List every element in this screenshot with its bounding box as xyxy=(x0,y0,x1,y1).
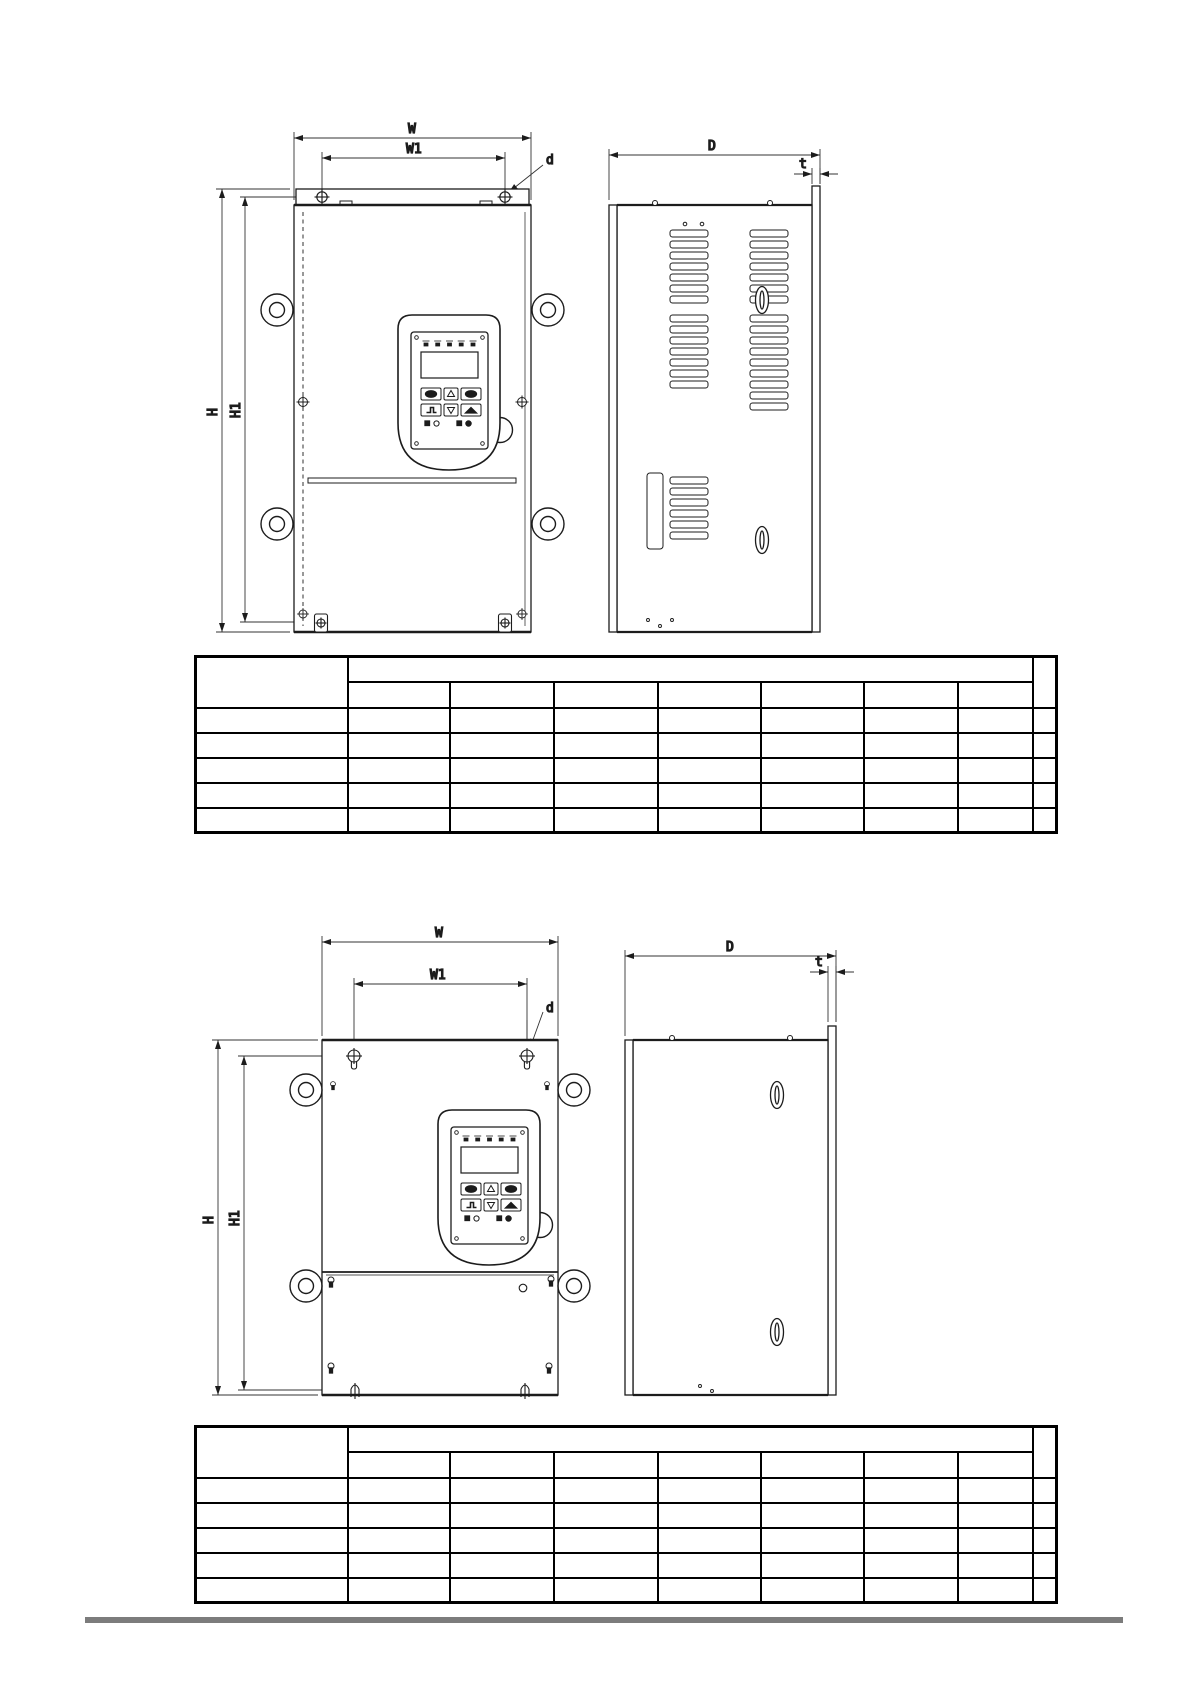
table-cell xyxy=(554,808,658,833)
dim-D xyxy=(625,950,836,1036)
sub-header-cell xyxy=(554,682,658,708)
table-cell xyxy=(554,1503,658,1528)
table-cell xyxy=(761,758,864,783)
front-flange xyxy=(609,205,617,632)
table-cell xyxy=(761,783,864,808)
lifting-eye xyxy=(261,294,293,326)
sub-header-cell xyxy=(348,1452,450,1478)
table-cell xyxy=(450,1503,554,1528)
sub-header-cell xyxy=(864,682,958,708)
table-cell xyxy=(348,708,450,733)
table-cell xyxy=(196,1578,348,1603)
table-cell xyxy=(450,708,554,733)
table-cell xyxy=(554,1528,658,1553)
table-cell xyxy=(196,1553,348,1578)
side-view-top-drawing: D t xyxy=(609,139,838,632)
table-cell xyxy=(450,808,554,833)
table-cell xyxy=(658,733,761,758)
table-cell xyxy=(450,758,554,783)
table-cell xyxy=(1033,783,1057,808)
dim-t xyxy=(810,966,854,1022)
table-cell xyxy=(864,783,958,808)
table-cell xyxy=(1033,1478,1057,1503)
table-cell xyxy=(196,758,348,783)
side-view-bottom-drawing: D t xyxy=(625,940,854,1395)
table-cell xyxy=(658,1503,761,1528)
table-cell xyxy=(554,733,658,758)
model-header-cell xyxy=(196,1427,348,1478)
lifting-eye xyxy=(532,508,564,540)
corner-screw xyxy=(331,1082,336,1090)
dim-label-w1: W1 xyxy=(406,142,422,157)
table-cell xyxy=(958,1528,1033,1553)
dim-label-w: W xyxy=(435,926,443,941)
lifting-eye xyxy=(261,508,293,540)
table-cell xyxy=(1033,708,1057,733)
table-row xyxy=(196,1503,1057,1528)
table-cell xyxy=(761,1578,864,1603)
table-cell xyxy=(348,1478,450,1503)
table-cell xyxy=(196,783,348,808)
table-cell xyxy=(761,733,864,758)
dim-label-h1: H1 xyxy=(229,402,244,418)
table-cell xyxy=(196,1528,348,1553)
table-cell xyxy=(554,1478,658,1503)
sub-header-cell xyxy=(348,682,450,708)
table-cell xyxy=(450,1528,554,1553)
table-cell xyxy=(348,808,450,833)
table-cell xyxy=(196,1478,348,1503)
dimension-drawing-bottom: W W1 d H H1 xyxy=(170,925,880,1420)
table-row xyxy=(196,758,1057,783)
table-cell xyxy=(554,1578,658,1603)
front-view-bottom-drawing: W W1 d H H1 xyxy=(202,926,590,1399)
sub-header-cell xyxy=(658,682,761,708)
table-row xyxy=(196,1553,1057,1578)
dim-D xyxy=(609,149,820,200)
dim-label-w: W xyxy=(408,122,416,137)
dim-label-t: t xyxy=(799,157,807,172)
table-cell xyxy=(761,808,864,833)
table-row xyxy=(196,783,1057,808)
latch-handle xyxy=(771,1082,784,1109)
table-cell xyxy=(864,758,958,783)
table-cell xyxy=(196,808,348,833)
dim-label-h: H xyxy=(206,408,221,416)
dimension-group-header-cell xyxy=(348,657,1033,682)
table-cell xyxy=(761,708,864,733)
latch-handle xyxy=(756,287,769,314)
table-cell xyxy=(348,733,450,758)
sub-header-cell xyxy=(958,1452,1033,1478)
table-cell xyxy=(658,1528,761,1553)
model-header-cell xyxy=(196,657,348,708)
corner-screw xyxy=(545,1082,550,1090)
footer-rule xyxy=(85,1617,1123,1623)
latch-handle xyxy=(771,1319,784,1346)
last-column-header-cell xyxy=(1033,1427,1057,1478)
top-mounting-bracket xyxy=(296,189,529,205)
table-cell xyxy=(554,1553,658,1578)
table-cell xyxy=(1033,1553,1057,1578)
dim-H xyxy=(216,189,290,632)
table-cell xyxy=(864,708,958,733)
sub-header-cell xyxy=(864,1452,958,1478)
sub-header-cell xyxy=(554,1452,658,1478)
table-row xyxy=(196,1528,1057,1553)
table-cell xyxy=(958,808,1033,833)
table-cell xyxy=(761,1528,864,1553)
table-cell xyxy=(958,733,1033,758)
keypad xyxy=(438,1110,553,1265)
dim-W1 xyxy=(322,152,505,192)
cover-screw xyxy=(548,1276,554,1286)
table-cell xyxy=(864,1478,958,1503)
table-cell xyxy=(1033,1503,1057,1528)
table-cell xyxy=(761,1503,864,1528)
back-mounting-plate xyxy=(812,186,820,632)
table-cell xyxy=(450,1553,554,1578)
table-cell xyxy=(864,808,958,833)
lifting-eye xyxy=(290,1270,322,1302)
dim-label-d-depth: D xyxy=(726,940,734,955)
table-cell xyxy=(554,783,658,808)
vent-louvers-right xyxy=(750,230,788,410)
sub-header-cell xyxy=(450,682,554,708)
table-cell xyxy=(196,733,348,758)
lifting-eye xyxy=(558,1074,590,1106)
dim-label-d: d xyxy=(546,153,554,168)
table-cell xyxy=(348,1528,450,1553)
table-cell xyxy=(658,1478,761,1503)
table-cell xyxy=(864,733,958,758)
dimension-drawing-top: W W1 d H H1 xyxy=(170,115,880,650)
front-view-top-drawing: W W1 d H H1 xyxy=(206,122,564,632)
spec-table-2-container xyxy=(194,1425,1058,1604)
table-cell xyxy=(958,708,1033,733)
dim-label-w1: W1 xyxy=(430,968,446,983)
specification-table xyxy=(194,1425,1058,1604)
cover-screw xyxy=(328,1363,334,1373)
table-cell xyxy=(958,1578,1033,1603)
lifting-eye xyxy=(532,294,564,326)
table-cell xyxy=(450,1478,554,1503)
lifting-eye xyxy=(558,1270,590,1302)
table-cell xyxy=(864,1553,958,1578)
table-row xyxy=(196,733,1057,758)
cover-screw xyxy=(546,1363,552,1373)
table-cell xyxy=(1033,1528,1057,1553)
table-cell xyxy=(1033,733,1057,758)
table-cell xyxy=(450,733,554,758)
table-row xyxy=(196,808,1057,833)
dim-d xyxy=(509,165,543,192)
table-cell xyxy=(761,1478,864,1503)
table-cell xyxy=(658,758,761,783)
table-cell xyxy=(196,1503,348,1528)
sub-header-cell xyxy=(658,1452,761,1478)
table-cell xyxy=(1033,758,1057,783)
table-cell xyxy=(554,758,658,783)
table-cell xyxy=(958,1553,1033,1578)
table-cell xyxy=(958,758,1033,783)
bottom-foot xyxy=(499,614,512,632)
manual-page: W W1 d H H1 xyxy=(0,0,1191,1684)
cover-screw xyxy=(328,1277,334,1287)
table-cell xyxy=(658,1553,761,1578)
table-cell xyxy=(864,1578,958,1603)
table-cell xyxy=(450,1578,554,1603)
table-cell xyxy=(658,1578,761,1603)
keypad xyxy=(398,315,513,470)
last-column-header-cell xyxy=(1033,657,1057,708)
table-cell xyxy=(958,1478,1033,1503)
latch-handle xyxy=(756,527,769,554)
front-flange xyxy=(625,1040,633,1395)
dimension-group-header-cell xyxy=(348,1427,1033,1452)
dim-label-d: d xyxy=(546,1001,554,1016)
table-cell xyxy=(348,783,450,808)
table-cell xyxy=(658,783,761,808)
table-row xyxy=(196,708,1057,733)
table-cell xyxy=(450,783,554,808)
sub-header-cell xyxy=(958,682,1033,708)
dim-label-h1: H1 xyxy=(228,1210,243,1226)
sub-header-cell xyxy=(450,1452,554,1478)
cover-seam xyxy=(308,478,516,483)
table-cell xyxy=(196,708,348,733)
table-row xyxy=(196,1478,1057,1503)
table-cell xyxy=(348,1578,450,1603)
sub-header-cell xyxy=(761,682,864,708)
specification-table xyxy=(194,655,1058,834)
dim-label-h: H xyxy=(202,1216,217,1224)
table-cell xyxy=(658,708,761,733)
table-cell xyxy=(958,783,1033,808)
lifting-eye xyxy=(290,1074,322,1106)
table-cell xyxy=(658,808,761,833)
table-cell xyxy=(348,1553,450,1578)
table-cell xyxy=(348,758,450,783)
table-cell xyxy=(554,708,658,733)
back-mounting-plate xyxy=(828,1026,836,1395)
sub-header-cell xyxy=(761,1452,864,1478)
table-cell xyxy=(864,1528,958,1553)
table-cell xyxy=(348,1503,450,1528)
table-cell xyxy=(864,1503,958,1528)
table-cell xyxy=(1033,1578,1057,1603)
dim-W xyxy=(322,936,558,1036)
table-cell xyxy=(958,1503,1033,1528)
spec-table-1-container xyxy=(194,655,1058,834)
dim-label-d-depth: D xyxy=(708,139,716,154)
enclosure-side xyxy=(633,1040,828,1395)
table-cell xyxy=(761,1553,864,1578)
table-cell xyxy=(1033,808,1057,833)
bottom-foot xyxy=(315,614,328,632)
dim-label-t: t xyxy=(815,955,823,970)
table-row xyxy=(196,1578,1057,1603)
